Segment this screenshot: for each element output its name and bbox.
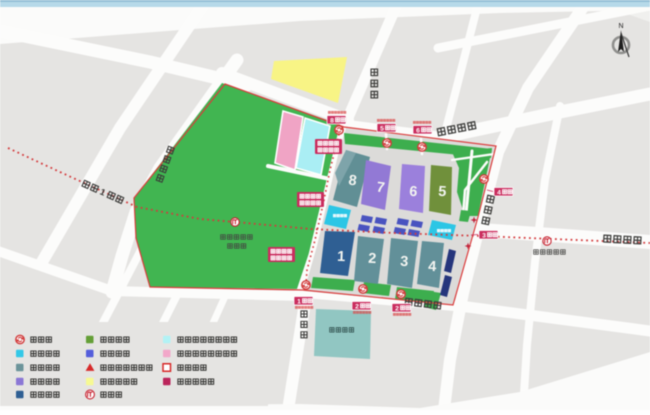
- svg-text:4: 4: [428, 259, 437, 275]
- svg-text:2: 2: [355, 303, 359, 310]
- svg-text:1: 1: [297, 298, 301, 305]
- svg-text:6: 6: [409, 184, 418, 201]
- svg-text:8: 8: [330, 117, 334, 124]
- svg-text:N: N: [618, 23, 623, 30]
- svg-text:6: 6: [416, 127, 420, 134]
- svg-text:4: 4: [497, 189, 501, 196]
- svg-text:5: 5: [380, 125, 384, 132]
- svg-text:2: 2: [395, 305, 399, 312]
- svg-text:3: 3: [482, 232, 486, 239]
- svg-text:2: 2: [368, 251, 377, 267]
- svg-text:1: 1: [337, 249, 346, 265]
- svg-text:3: 3: [400, 254, 409, 270]
- svg-text:5: 5: [438, 184, 447, 201]
